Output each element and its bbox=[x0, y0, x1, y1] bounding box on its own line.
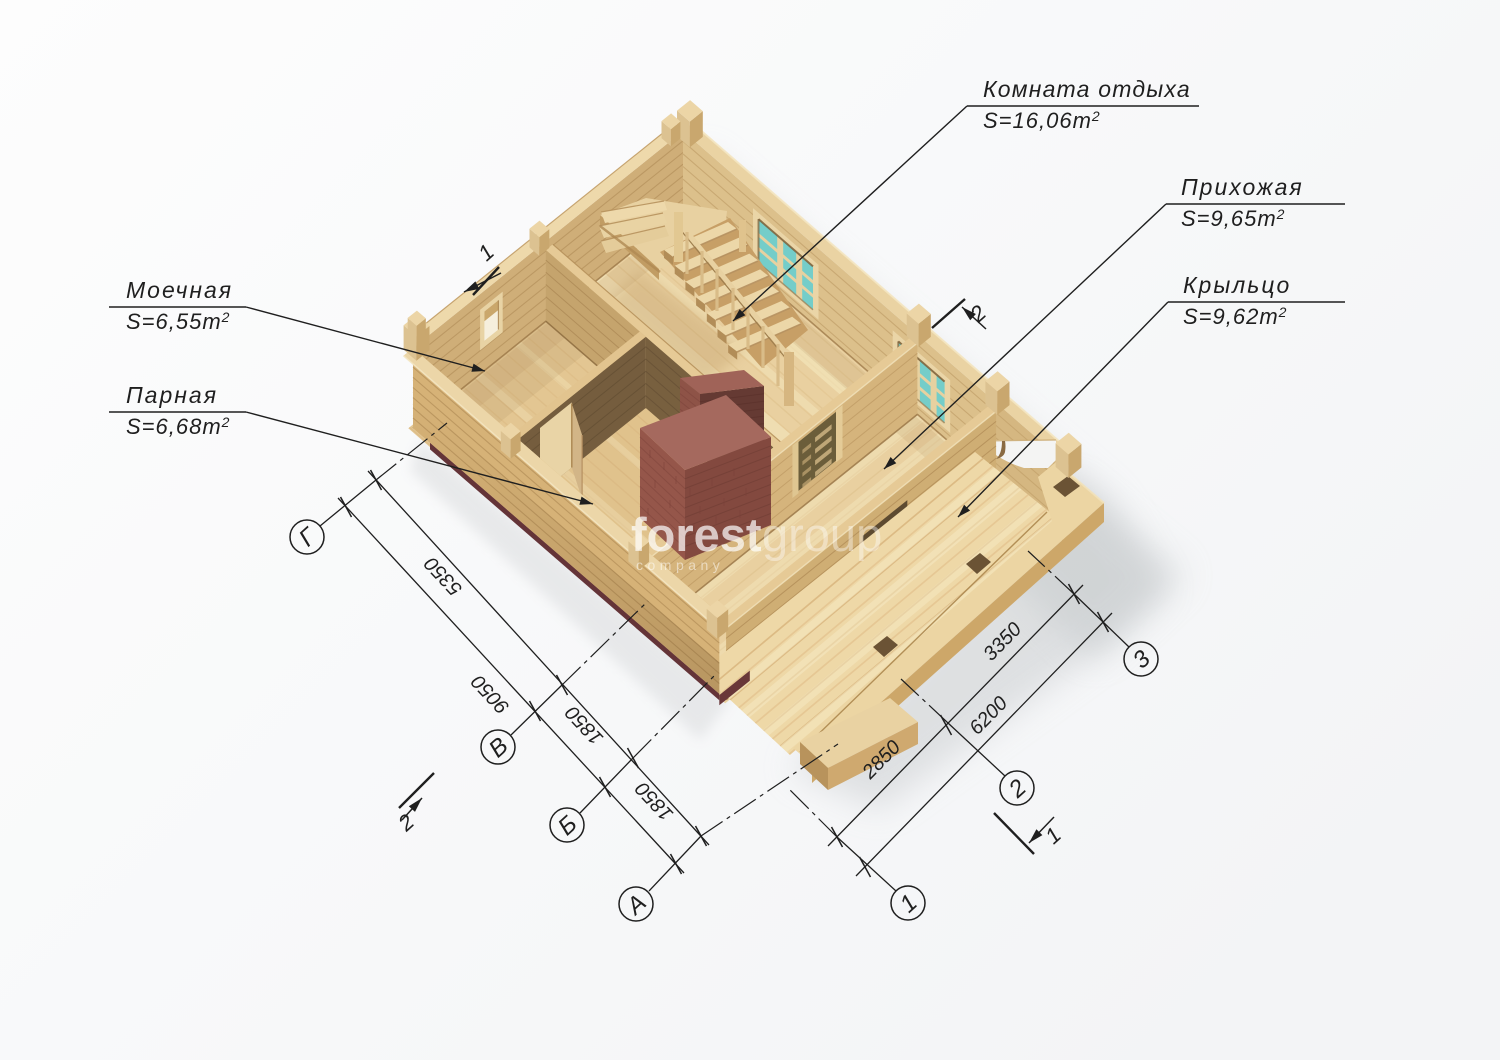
svg-text:company: company bbox=[636, 557, 724, 573]
svg-text:S=6,55m2: S=6,55m2 bbox=[126, 309, 230, 334]
svg-text:Прихожая: Прихожая bbox=[1181, 174, 1304, 200]
svg-text:S=6,68m2: S=6,68m2 bbox=[126, 414, 230, 439]
svg-text:Моечная: Моечная bbox=[126, 277, 233, 303]
svg-text:Комната отдыха: Комната отдыха bbox=[983, 76, 1191, 102]
svg-text:forest: forest bbox=[631, 508, 762, 561]
svg-text:S=9,65m2: S=9,65m2 bbox=[1181, 206, 1285, 231]
svg-text:S=16,06m2: S=16,06m2 bbox=[983, 108, 1101, 133]
svg-text:group: group bbox=[762, 508, 882, 561]
svg-text:Парная: Парная bbox=[126, 382, 218, 408]
svg-text:Крыльцо: Крыльцо bbox=[1183, 272, 1291, 298]
svg-text:S=9,62m2: S=9,62m2 bbox=[1183, 304, 1287, 329]
